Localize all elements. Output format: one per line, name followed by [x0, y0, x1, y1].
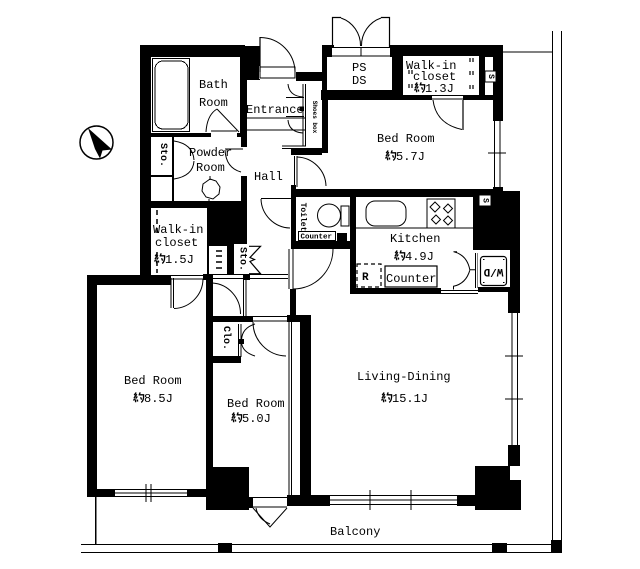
svg-text:Clo.: Clo.: [220, 326, 232, 350]
svg-text:8.5J: 8.5J: [144, 392, 173, 406]
svg-text:15.1J: 15.1J: [392, 392, 428, 406]
svg-text:Room: Room: [199, 96, 228, 110]
svg-text:Shoes box: Shoes box: [311, 101, 318, 134]
svg-text:Bath: Bath: [199, 78, 228, 92]
svg-text:4.9J: 4.9J: [405, 250, 434, 264]
svg-text:closet: closet: [155, 236, 198, 250]
svg-text:Sto.: Sto.: [157, 143, 168, 167]
svg-text:Bed Room: Bed Room: [227, 397, 285, 411]
svg-text:Counter: Counter: [301, 234, 333, 242]
svg-text:Walk-in: Walk-in: [153, 223, 203, 237]
svg-text:PS: PS: [352, 61, 366, 75]
svg-text:Hall: Hall: [254, 170, 283, 184]
svg-text:R: R: [362, 272, 369, 284]
svg-text:Room: Room: [196, 161, 225, 175]
svg-text:Bed Room: Bed Room: [377, 132, 435, 146]
svg-text:Living-Dining: Living-Dining: [357, 370, 451, 384]
svg-text:Counter: Counter: [386, 272, 436, 286]
svg-text:5.0J: 5.0J: [242, 412, 271, 426]
svg-text:DS: DS: [352, 74, 366, 88]
svg-text:Toilet: Toilet: [298, 203, 307, 232]
svg-text:5.7J: 5.7J: [396, 150, 425, 164]
svg-text:W/D: W/D: [483, 265, 503, 277]
svg-text:Kitchen: Kitchen: [390, 232, 440, 246]
svg-text:1.5J: 1.5J: [165, 253, 194, 267]
svg-text:Entrance: Entrance: [246, 103, 304, 117]
svg-text:Sto.: Sto.: [237, 247, 248, 271]
svg-text:Bed Room: Bed Room: [124, 374, 182, 388]
svg-text:S: S: [481, 198, 490, 203]
svg-text:S: S: [486, 74, 495, 79]
svg-text:Balcony: Balcony: [330, 525, 380, 539]
svg-text:Powder: Powder: [189, 146, 232, 160]
svg-text:1.3J: 1.3J: [425, 82, 454, 96]
